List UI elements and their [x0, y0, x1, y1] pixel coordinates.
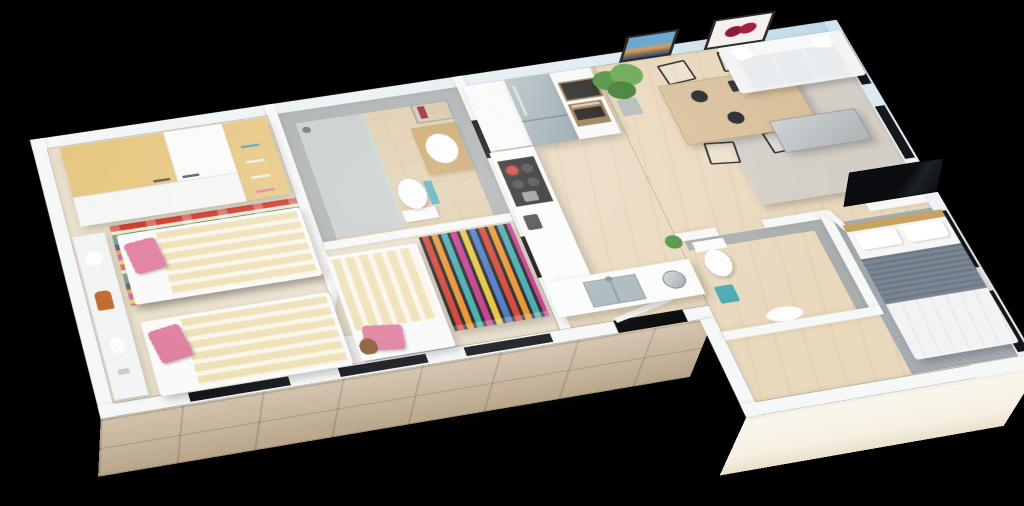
- giraffe-toy: [94, 290, 115, 311]
- apartment-scene: [30, 20, 1024, 506]
- burner-2: [511, 179, 526, 189]
- render-canvas: [0, 0, 1024, 506]
- onion-2: [737, 22, 758, 35]
- wardrobe-drawer-handle-1: [246, 159, 265, 164]
- twin-bed-2-pillow: [147, 323, 195, 364]
- apartment-plan: [30, 20, 1024, 506]
- wardrobe-handle-b: [182, 173, 199, 178]
- wardrobe-drawer-handle-teal: [241, 143, 260, 148]
- twin-bed-1-pillow: [123, 237, 168, 275]
- wardrobe-drawer-handle-pink: [255, 188, 274, 193]
- plant-pot: [616, 97, 644, 116]
- placemat-3: [725, 111, 747, 125]
- sofa-pillow-right: [811, 36, 833, 48]
- oven-glass: [573, 106, 606, 121]
- wardrobe-drawer-handle-2: [251, 174, 270, 179]
